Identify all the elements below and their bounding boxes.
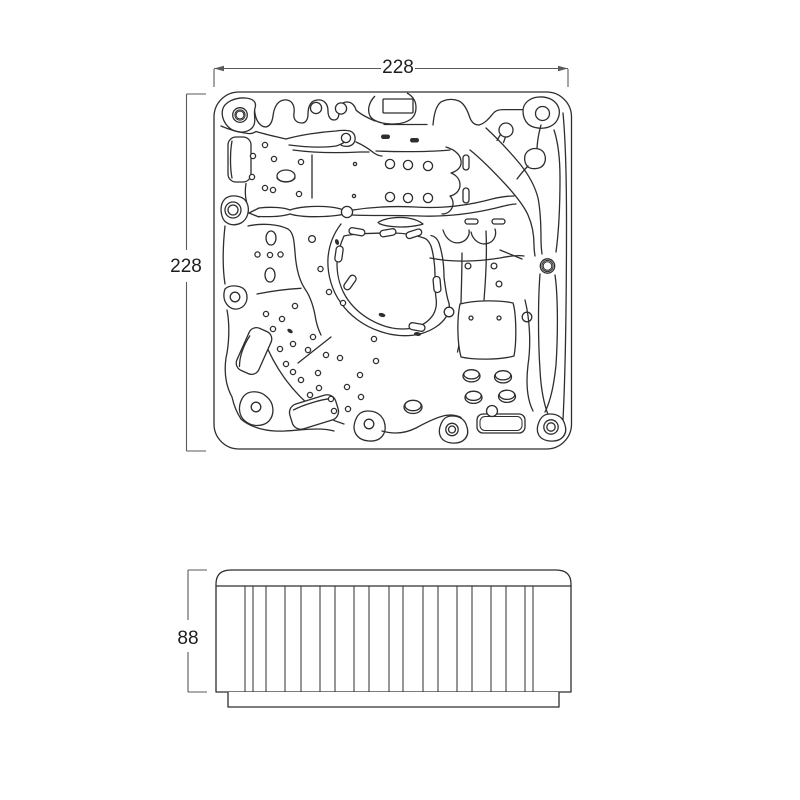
svg-text:228: 228 (382, 57, 414, 78)
svg-text:228: 228 (170, 256, 202, 277)
svg-text:88: 88 (177, 628, 198, 649)
